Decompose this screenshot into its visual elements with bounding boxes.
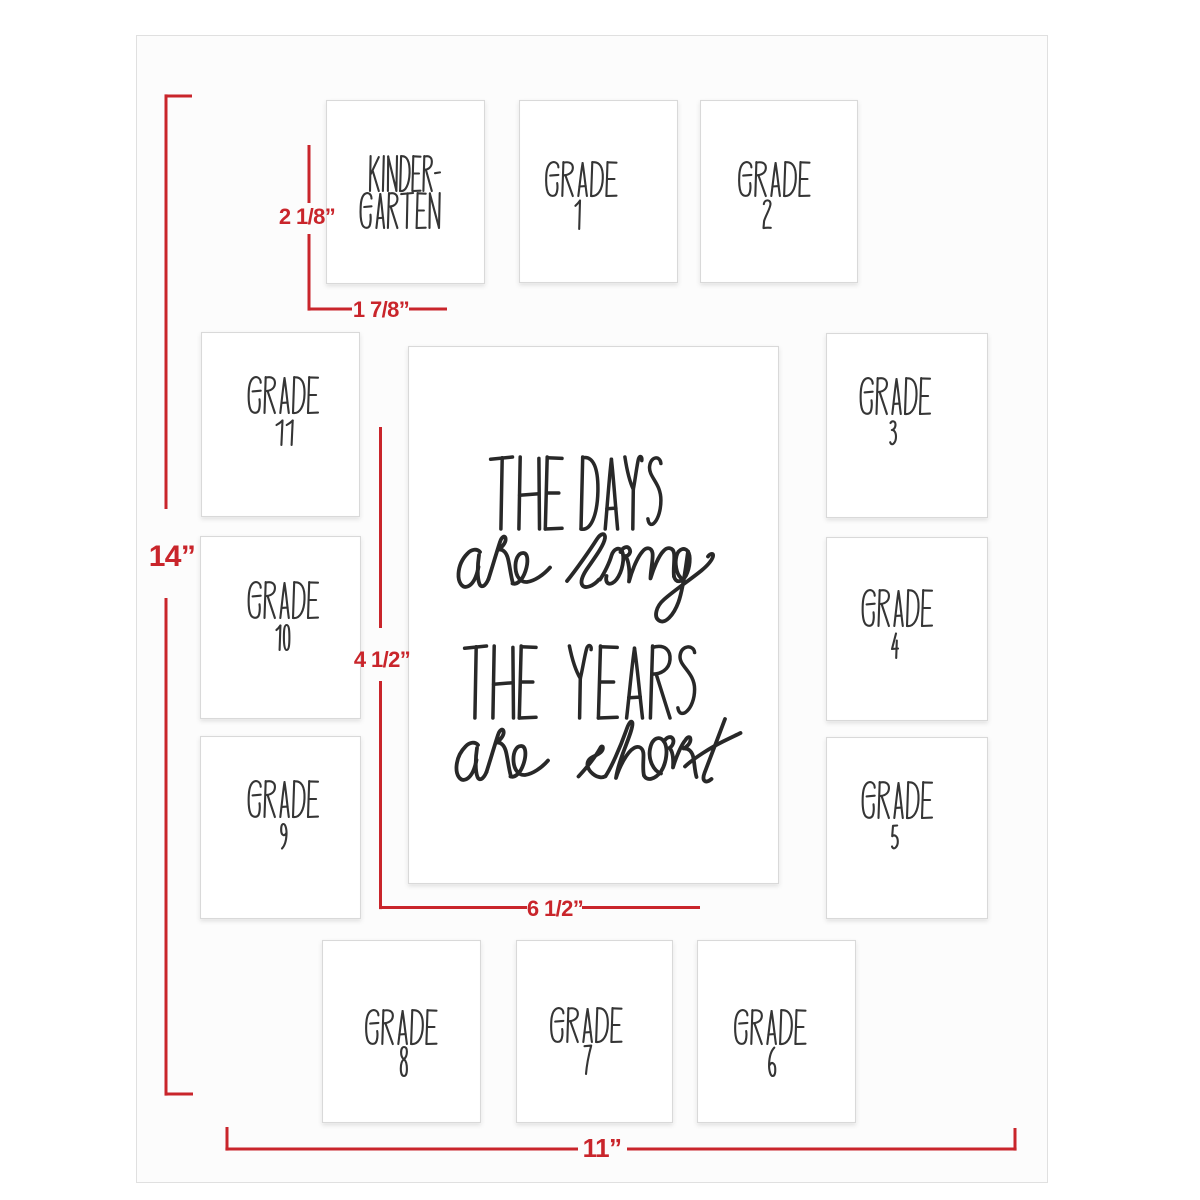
- svg-text:4 1/2”: 4 1/2”: [354, 647, 410, 672]
- svg-text:6 1/2”: 6 1/2”: [527, 896, 583, 921]
- svg-text:14”: 14”: [149, 540, 196, 573]
- svg-text:1 7/8”: 1 7/8”: [353, 297, 409, 322]
- svg-text:11”: 11”: [583, 1133, 622, 1163]
- svg-text:2 1/8”: 2 1/8”: [279, 204, 335, 229]
